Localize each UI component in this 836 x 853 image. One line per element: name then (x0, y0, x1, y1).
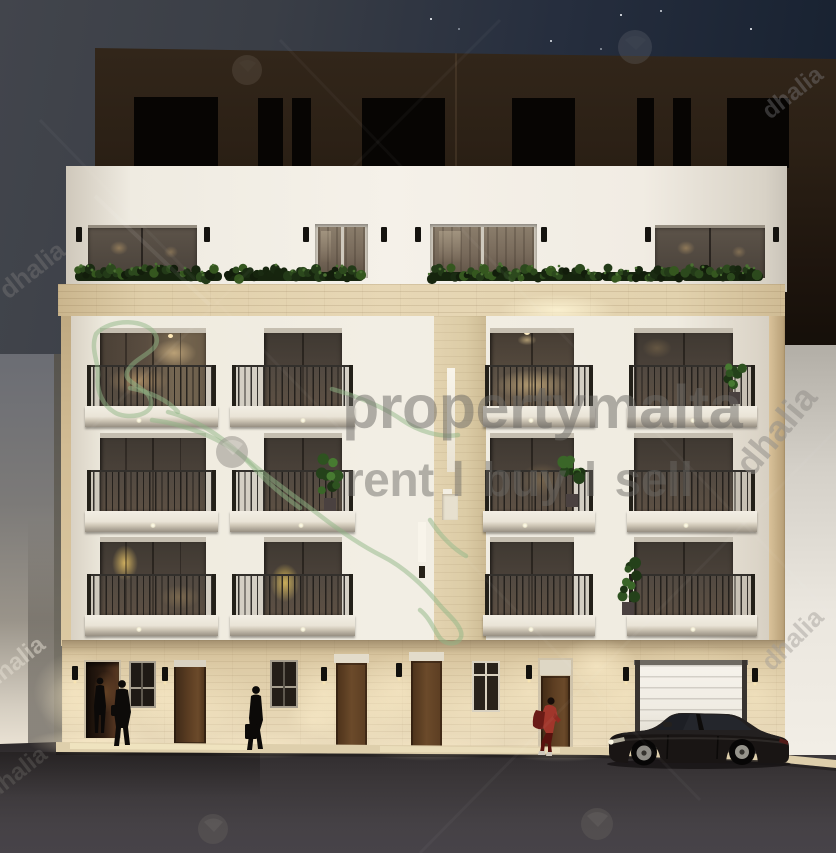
svg-text:dhalia: dhalia (0, 630, 51, 694)
svg-text:dhalia: dhalia (0, 235, 71, 305)
svg-text:dhalia: dhalia (0, 740, 53, 804)
svg-text:propertymalta: propertymalta (342, 373, 744, 441)
svg-text:dhalia: dhalia (757, 60, 829, 124)
svg-text:rent l buy l sell: rent l buy l sell (345, 454, 693, 507)
svg-text:dhalia: dhalia (755, 602, 830, 677)
